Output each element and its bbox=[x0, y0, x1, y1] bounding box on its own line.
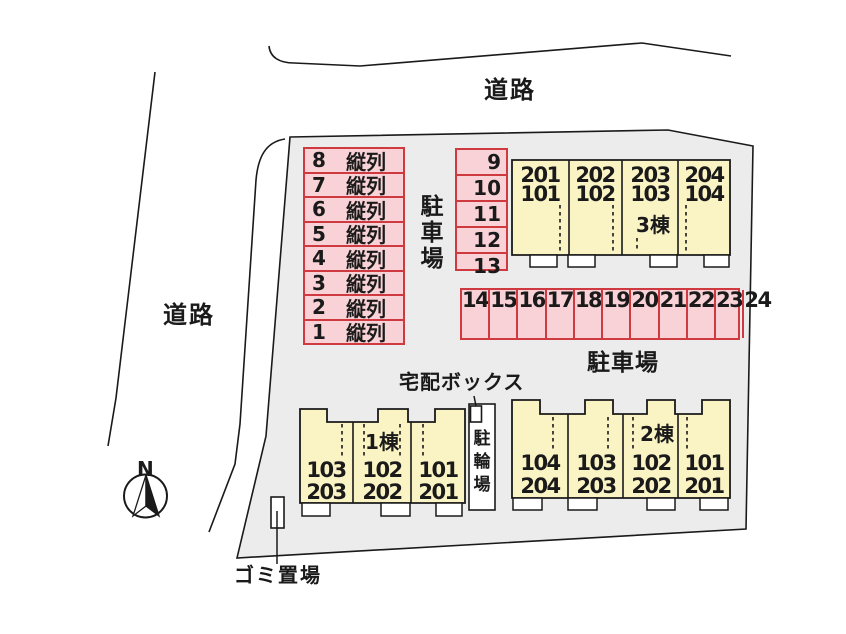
parking-space-tandem: 3縦列 bbox=[305, 270, 403, 295]
building-3-name: 3棟 bbox=[636, 215, 670, 235]
parking-space: 21 bbox=[658, 290, 686, 338]
tandem-parking-column: 8縦列7縦列6縦列5縦列4縦列3縦列2縦列1縦列 bbox=[303, 147, 405, 345]
unit-label: 101201 bbox=[418, 459, 457, 503]
unit-label: 102202 bbox=[631, 452, 670, 498]
unit-label: 202102 bbox=[575, 166, 614, 204]
parking-space: 18 bbox=[573, 290, 601, 338]
parking-area-label-bottom: 駐車場 bbox=[587, 352, 659, 375]
parking-space: 14 bbox=[462, 290, 488, 338]
parking-space-tandem: 6縦列 bbox=[305, 196, 403, 221]
parking-space: 9 bbox=[457, 150, 506, 174]
parking-space: 24 bbox=[742, 290, 770, 338]
parking-space: 16 bbox=[516, 290, 544, 338]
parking-space-tandem: 8縦列 bbox=[305, 149, 403, 172]
delivery-box-label: 宅配ボックス bbox=[399, 372, 524, 392]
unit-label: 203103 bbox=[630, 166, 669, 204]
parking-space-tandem: 1縦列 bbox=[305, 319, 403, 344]
unit-label: 103203 bbox=[306, 459, 345, 503]
building-1-name: 1棟 bbox=[365, 432, 399, 452]
unit-label: 104204 bbox=[520, 452, 559, 498]
parking-space-tandem: 5縦列 bbox=[305, 221, 403, 246]
parking-space: 11 bbox=[457, 200, 506, 226]
road-label-top: 道路 bbox=[484, 78, 536, 102]
unit-label: 204104 bbox=[684, 166, 723, 204]
middle-parking-column: 910111213 bbox=[455, 148, 508, 271]
parking-space: 13 bbox=[457, 252, 506, 278]
building-2-name: 2棟 bbox=[640, 424, 674, 444]
parking-space-tandem: 7縦列 bbox=[305, 172, 403, 197]
compass-north-label: N bbox=[137, 459, 154, 479]
parking-space: 20 bbox=[629, 290, 657, 338]
unit-label: 101201 bbox=[684, 452, 723, 498]
road-label-left: 道路 bbox=[163, 303, 215, 327]
garbage-area-label: ゴミ置場 bbox=[234, 565, 322, 585]
road-top-edge bbox=[269, 43, 731, 66]
parking-space: 10 bbox=[457, 174, 506, 200]
bottom-parking-row: 1415161718192021222324 bbox=[460, 288, 740, 340]
unit-label: 201101 bbox=[520, 166, 559, 204]
bicycle-parking-label: 駐輪場 bbox=[472, 428, 492, 497]
delivery-box-outline bbox=[471, 406, 482, 422]
parking-space: 22 bbox=[686, 290, 714, 338]
parking-space: 15 bbox=[488, 290, 516, 338]
site-plan: 道路 道路 駐車場 駐車場 宅配ボックス 駐輪場 ゴミ置場 N 3棟 1棟 2棟… bbox=[0, 0, 846, 634]
parking-space: 12 bbox=[457, 226, 506, 252]
parking-space-tandem: 2縦列 bbox=[305, 294, 403, 319]
unit-label: 103203 bbox=[576, 452, 615, 498]
parking-space-tandem: 4縦列 bbox=[305, 245, 403, 270]
unit-label: 102202 bbox=[362, 459, 401, 503]
parking-area-label-left: 駐車場 bbox=[419, 194, 445, 272]
parking-space: 17 bbox=[545, 290, 573, 338]
parking-space: 19 bbox=[601, 290, 629, 338]
road-left-edge bbox=[108, 72, 155, 446]
building-1-porches bbox=[302, 503, 462, 516]
parking-space: 23 bbox=[714, 290, 742, 338]
